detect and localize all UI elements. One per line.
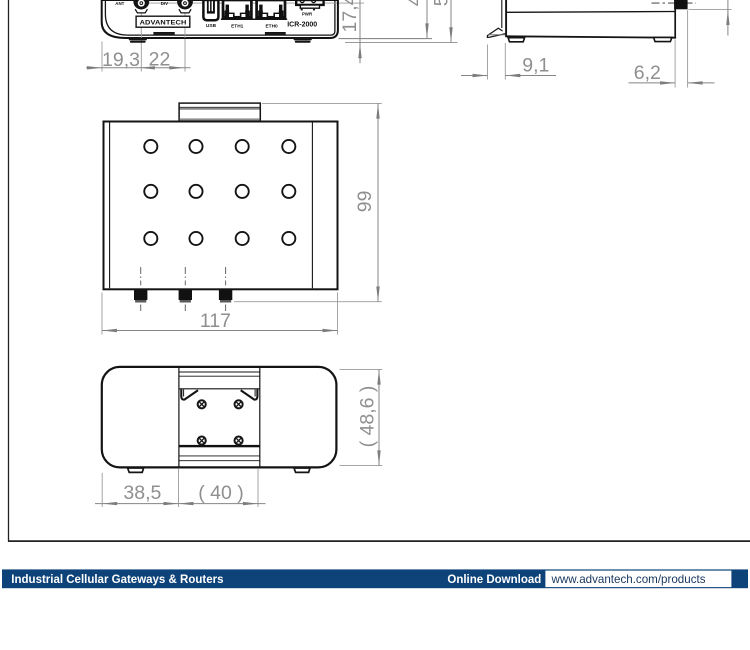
svg-text:( 40 ): ( 40 ) <box>198 482 244 504</box>
svg-text:19,3: 19,3 <box>102 49 140 71</box>
svg-text:99: 99 <box>354 191 376 213</box>
svg-text:ANT: ANT <box>115 1 124 6</box>
svg-text:22: 22 <box>149 48 171 70</box>
svg-text:4: 4 <box>404 0 426 6</box>
svg-text:( 48,6 ): ( 48,6 ) <box>356 386 378 448</box>
svg-text:5: 5 <box>430 0 452 6</box>
svg-text:DIV: DIV <box>161 1 168 6</box>
svg-text:ETH0: ETH0 <box>265 23 278 29</box>
svg-text:ICR-2000: ICR-2000 <box>287 22 317 29</box>
svg-text:USB: USB <box>206 23 217 29</box>
svg-text:www.advantech.com/products: www.advantech.com/products <box>551 573 706 586</box>
svg-text:PWR: PWR <box>302 12 313 17</box>
svg-text:117: 117 <box>200 310 231 332</box>
svg-text:9,1: 9,1 <box>522 55 549 77</box>
svg-text:Industrial Cellular Gateways &: Industrial Cellular Gateways & Routers <box>11 574 223 586</box>
svg-text:6,2: 6,2 <box>634 62 661 84</box>
svg-text:ETH1: ETH1 <box>231 23 244 29</box>
svg-text:17,4: 17,4 <box>339 0 361 32</box>
svg-text:Online Download: Online Download <box>447 574 541 586</box>
svg-text:38,5: 38,5 <box>123 482 161 504</box>
svg-text:ADVANTECH: ADVANTECH <box>140 20 187 27</box>
